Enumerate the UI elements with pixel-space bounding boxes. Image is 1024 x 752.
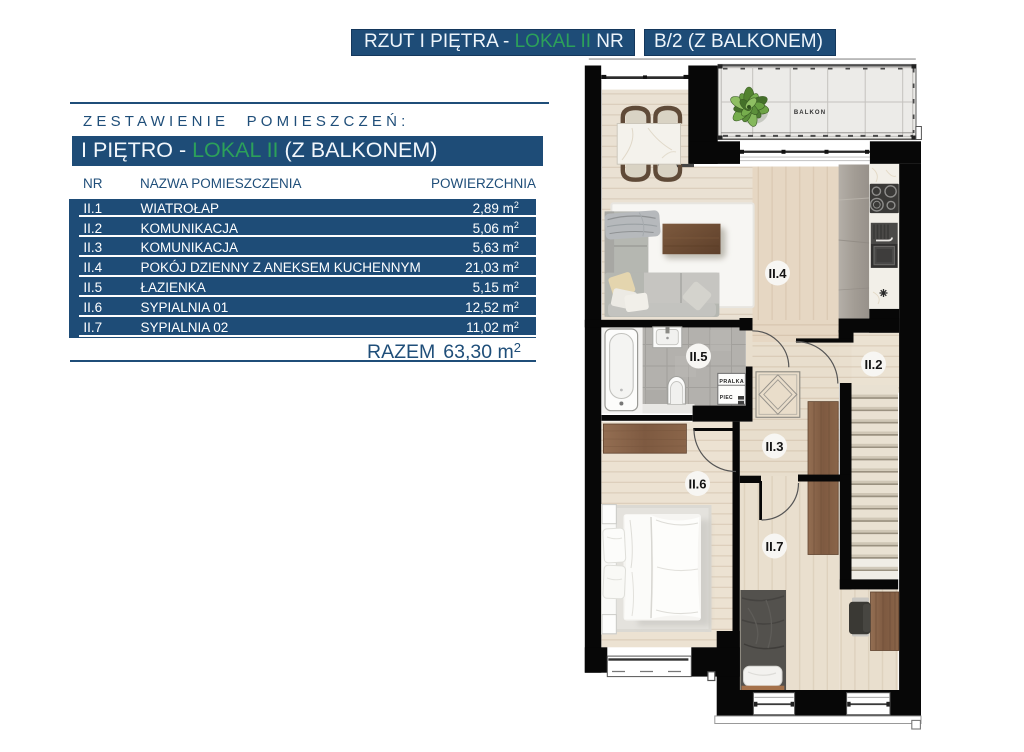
- svg-text:BALKON: BALKON: [794, 110, 826, 116]
- svg-text:II.4: II.4: [768, 266, 787, 281]
- svg-text:II.7: II.7: [765, 539, 783, 554]
- svg-text:II.5: II.5: [689, 349, 707, 364]
- svg-text:PIEC: PIEC: [720, 395, 733, 401]
- svg-text:PRALKA: PRALKA: [719, 379, 744, 385]
- svg-text:II.2: II.2: [864, 357, 882, 372]
- svg-text:II.3: II.3: [765, 439, 783, 454]
- svg-text:II.6: II.6: [688, 476, 706, 491]
